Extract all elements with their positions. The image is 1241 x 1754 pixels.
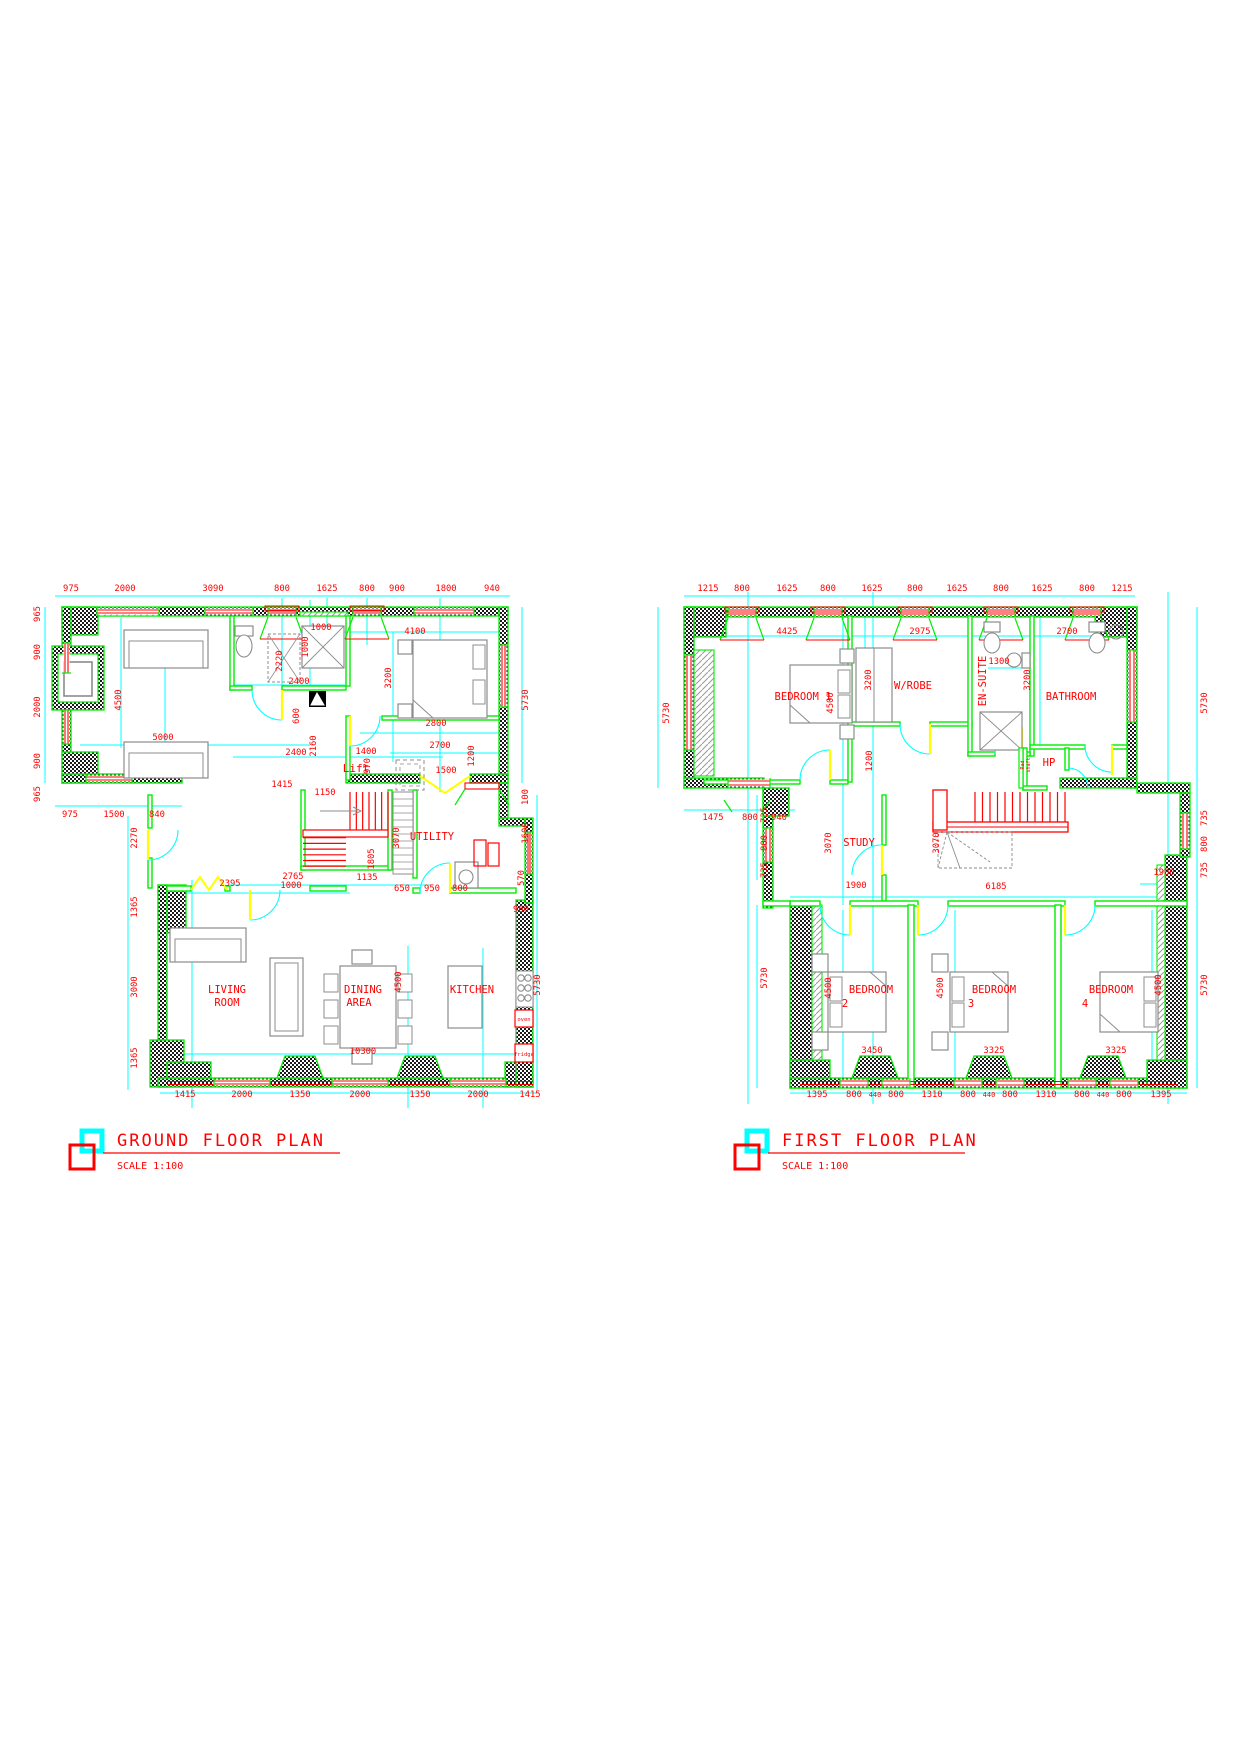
ground-floor-title-block: GROUND FLOOR PLAN SCALE 1:100 [70, 1131, 340, 1172]
dim-label: 735 [1200, 862, 1210, 878]
dim-label: 800 [1200, 836, 1210, 852]
dim-label: 1395 [806, 1090, 827, 1100]
dim-label: 1625 [316, 584, 337, 594]
dim-label: 5730 [533, 974, 543, 995]
dim-label: 2000 [114, 584, 135, 594]
dim-label: 1400 [355, 747, 376, 757]
room-label: 3 [968, 998, 974, 1010]
dim-label: 800 [820, 584, 836, 594]
dim-label: 800 [1116, 1090, 1132, 1100]
plan-marker-cyan-icon [82, 1131, 102, 1151]
dim-label: 1625 [946, 584, 967, 594]
dim-label: 1000 [280, 881, 301, 891]
dim-label: 3070 [824, 832, 834, 853]
room-label: EN-SUITE [977, 656, 989, 707]
dim-label: 965 [33, 606, 43, 622]
dim-label: 735 [760, 862, 770, 878]
dim-label: 1350 [289, 1090, 310, 1100]
dim-label: 5000 [152, 733, 173, 743]
dim-label: 1395 [1150, 1090, 1171, 1100]
room-label: UTILITY [410, 831, 455, 843]
dim-label: 1215 [697, 584, 718, 594]
dim-label: 800 [274, 584, 290, 594]
room-label: LIVING [208, 984, 246, 996]
dim-label: 1415 [271, 780, 292, 790]
dim-label: 965 [33, 786, 43, 802]
dim-label: 800 [1079, 584, 1095, 594]
dim-label: 900 [389, 584, 405, 594]
dim-label: 440 [983, 1091, 996, 1099]
dim-label: 5730 [1200, 974, 1210, 995]
dim-label: 4500 [394, 971, 404, 992]
dim-label: 800 [960, 1090, 976, 1100]
room-label: W/ROBE [894, 680, 932, 692]
dim-label: 800 [846, 1090, 862, 1100]
dim-label: 5730 [1200, 692, 1210, 713]
dim-label: 940 [771, 813, 787, 823]
dim-label: 1415 [174, 1090, 195, 1100]
dim-label: 1415 [519, 1090, 540, 1100]
dim-label: 1135 [356, 873, 377, 883]
dim-label: 2160 [309, 735, 319, 756]
dim-label: 950 [424, 884, 440, 894]
dim-label: 3325 [983, 1046, 1004, 1056]
dim-label: 5730 [521, 689, 531, 710]
dim-label: shaft [1026, 757, 1032, 772]
dim-label: 800 [907, 584, 923, 594]
room-label: HP [1043, 757, 1056, 769]
dim-label: 2000 [467, 1090, 488, 1100]
room-label: 4 [1082, 998, 1088, 1010]
dim-label: 2270 [130, 827, 140, 848]
dim-label: 440 [869, 1091, 882, 1099]
dim-label: 4500 [936, 977, 946, 998]
dim-label: 2975 [909, 627, 930, 637]
room-label: BEDROOM 1 [775, 691, 832, 703]
room-label: BEDROOM [1089, 984, 1133, 996]
dim-label: 3000 [130, 976, 140, 997]
dim-label: 1500 [435, 766, 456, 776]
room-label: ROOM [214, 997, 239, 1009]
dim-label: 800 [993, 584, 1009, 594]
dim-label: 1215 [1111, 584, 1132, 594]
plan-marker-cyan-icon [747, 1131, 767, 1151]
dim-label: 4100 [404, 627, 425, 637]
dim-label: 2700 [1056, 627, 1077, 637]
dim-label: 4500 [824, 977, 834, 998]
dim-label: 800 [1002, 1090, 1018, 1100]
dim-label: 1625 [1031, 584, 1052, 594]
dim-label: 100 [521, 789, 531, 805]
first-floor-title: FIRST FLOOR PLAN [782, 1131, 978, 1151]
dim-label: 5730 [760, 967, 770, 988]
room-label: BEDROOM [972, 984, 1016, 996]
dim-label: 4500 [114, 689, 124, 710]
dim-label: 1000 [310, 623, 331, 633]
dim-label: 1625 [861, 584, 882, 594]
room-label: Lift [343, 762, 370, 775]
dim-label: 1365 [130, 1047, 140, 1068]
dim-label: 570 [517, 870, 527, 886]
ground-floor-title: GROUND FLOOR PLAN [117, 1131, 325, 1151]
dim-label: 2400 [285, 748, 306, 758]
dim-label: 3070 [932, 832, 942, 853]
dim-label: 960 [513, 905, 529, 915]
dim-label: 800 [734, 584, 750, 594]
first-floor-geometry [658, 592, 1197, 1104]
dim-label: 440 [1097, 1091, 1110, 1099]
dim-label: 3090 [202, 584, 223, 594]
first-floor-scale: SCALE 1:100 [782, 1161, 848, 1172]
dim-label: 2000 [33, 696, 43, 717]
dim-label: 1365 [130, 896, 140, 917]
dim-label: 800 [359, 584, 375, 594]
room-label: BATHROOM [1046, 691, 1097, 703]
dim-label: 4500 [1154, 974, 1164, 995]
dim-label: oven [517, 1017, 530, 1023]
room-label: KITCHEN [450, 984, 494, 996]
dim-label: 4425 [776, 627, 797, 637]
dim-label: 800 [760, 835, 770, 851]
dim-label: 3325 [1105, 1046, 1126, 1056]
dim-label: 800 [742, 813, 758, 823]
room-label: 2 [842, 998, 848, 1010]
dim-label: 900 [33, 753, 43, 769]
first-floor-title-block: FIRST FLOOR PLAN SCALE 1:100 [735, 1131, 978, 1172]
dim-label: 6185 [985, 882, 1006, 892]
dim-label: 900 [33, 644, 43, 660]
dim-label: 1150 [314, 788, 335, 798]
dim-label: 1310 [1035, 1090, 1056, 1100]
dim-label: 1000 [301, 636, 311, 657]
dim-label: 2400 [288, 677, 309, 687]
dim-label: 5730 [662, 702, 672, 723]
dim-label: 975 [63, 584, 79, 594]
dim-label: 2800 [425, 719, 446, 729]
dim-label: 1900 [845, 881, 866, 891]
floor-plan-canvas: 9752000309080016258009001800940965900200… [0, 0, 1241, 1754]
dim-label: 10300 [350, 1047, 376, 1057]
dim-label: 3200 [384, 667, 394, 688]
dim-label: 2000 [231, 1090, 252, 1100]
dim-label: 1800 [435, 584, 456, 594]
dim-label: 1600 [521, 822, 531, 843]
dim-label: 1900 [1153, 868, 1174, 878]
dim-label: 3200 [864, 669, 874, 690]
dim-label: 2700 [429, 741, 450, 751]
dim-label: 3200 [1023, 669, 1033, 690]
dim-label: 650 [394, 884, 410, 894]
dim-label: 975 [62, 810, 78, 820]
dim-label: fridge [514, 1052, 534, 1058]
room-label: STUDY [843, 837, 875, 849]
dim-label: 735 [760, 807, 770, 823]
room-label: DINING [344, 984, 382, 996]
dim-label: 1200 [865, 750, 875, 771]
ground-floor-geometry [45, 596, 537, 1108]
dim-label: 1500 [103, 810, 124, 820]
dim-label: 2395 [219, 879, 240, 889]
dim-label: 1350 [409, 1090, 430, 1100]
dim-label: 1625 [776, 584, 797, 594]
dim-label: 800 [452, 884, 468, 894]
dim-label: 800 [1074, 1090, 1090, 1100]
dim-label: 1300 [988, 657, 1009, 667]
dim-label: 735 [1200, 810, 1210, 826]
dim-label: 600 [292, 708, 302, 724]
dim-label: 1200 [467, 745, 477, 766]
dim-label: 3450 [861, 1046, 882, 1056]
room-label: BEDROOM [849, 984, 893, 996]
dim-label: 940 [484, 584, 500, 594]
dim-label: 2220 [275, 650, 285, 671]
room-label: AREA [346, 997, 372, 1009]
ground-floor-scale: SCALE 1:100 [117, 1161, 183, 1172]
dim-label: 840 [149, 810, 165, 820]
dim-label: 1805 [367, 848, 377, 869]
dim-label: 1475 [702, 813, 723, 823]
dim-label: 1310 [921, 1090, 942, 1100]
dim-label: 2000 [349, 1090, 370, 1100]
dim-label: 800 [888, 1090, 904, 1100]
dim-label: 3070 [392, 827, 402, 848]
drawing-sheet: 9752000309080016258009001800940965900200… [0, 0, 1241, 1754]
